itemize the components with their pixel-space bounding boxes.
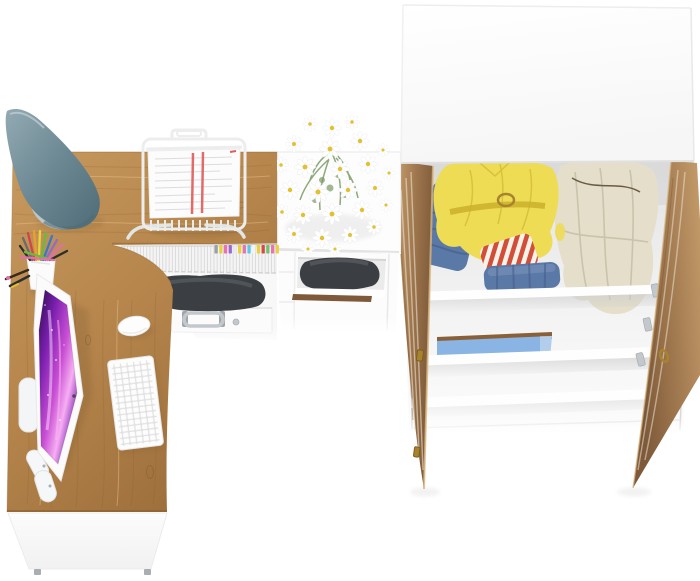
daisy-flower bbox=[376, 143, 390, 157]
daisy-flower bbox=[366, 219, 382, 235]
daisy-flower bbox=[301, 242, 315, 256]
daisy-flower bbox=[321, 203, 343, 225]
daisy-flower bbox=[350, 131, 370, 151]
desk-front-panel bbox=[8, 513, 167, 575]
cabinet-fade bbox=[278, 316, 400, 334]
daisy-flower bbox=[341, 226, 359, 244]
daisy-flower bbox=[312, 228, 332, 248]
book-tab bbox=[215, 245, 218, 254]
daisy-flower bbox=[382, 166, 396, 180]
book-tab bbox=[276, 245, 279, 254]
book-tab bbox=[262, 245, 265, 254]
daisy-flower bbox=[302, 116, 318, 132]
book-tab bbox=[224, 245, 227, 254]
daisy-flower bbox=[294, 156, 316, 178]
daisy-flower bbox=[352, 200, 372, 220]
book-tab bbox=[257, 245, 260, 254]
daisy-flower bbox=[358, 154, 378, 174]
daisy-flower bbox=[307, 181, 330, 204]
book-tab bbox=[271, 245, 274, 254]
storage-cabinet bbox=[273, 114, 401, 334]
daisy-flower bbox=[293, 205, 313, 225]
daisy-flower bbox=[328, 242, 342, 256]
cabinet-front bbox=[277, 248, 400, 334]
book-tab bbox=[219, 245, 222, 254]
book-tab bbox=[266, 245, 269, 254]
daisy-flower bbox=[379, 198, 393, 212]
garment-peek bbox=[555, 223, 565, 241]
eraser-tip bbox=[6, 276, 10, 280]
daisy-flower bbox=[285, 225, 303, 243]
book-tab bbox=[233, 245, 236, 254]
desk-foot bbox=[144, 569, 151, 575]
furniture-render bbox=[0, 0, 700, 581]
book-tab bbox=[243, 245, 246, 254]
daisy-flower bbox=[338, 180, 358, 200]
door-shadow bbox=[617, 488, 651, 497]
tray-papers bbox=[148, 149, 240, 218]
monitor-bracket bbox=[19, 378, 38, 432]
wardrobe bbox=[396, 5, 700, 497]
daisy-flower bbox=[344, 114, 360, 130]
book-tab bbox=[238, 245, 241, 254]
daisy-flower bbox=[366, 179, 384, 197]
daisy-flower bbox=[330, 159, 350, 179]
brass-hinge-icon bbox=[416, 350, 423, 362]
camera-dot bbox=[72, 394, 76, 398]
printer bbox=[300, 258, 380, 291]
daisy-flower bbox=[280, 180, 300, 200]
daisy-flower bbox=[285, 135, 303, 153]
drawer-knob bbox=[233, 319, 239, 325]
wardrobe-top bbox=[401, 5, 694, 163]
book-tab bbox=[247, 245, 250, 254]
daisy-flower bbox=[319, 138, 341, 160]
desk-foot bbox=[34, 569, 41, 575]
brass-hinge-icon bbox=[413, 447, 420, 458]
daisy-flower bbox=[322, 118, 342, 138]
book-tab bbox=[252, 245, 255, 254]
under-desk-fade bbox=[168, 328, 280, 346]
book-tab bbox=[229, 245, 232, 254]
